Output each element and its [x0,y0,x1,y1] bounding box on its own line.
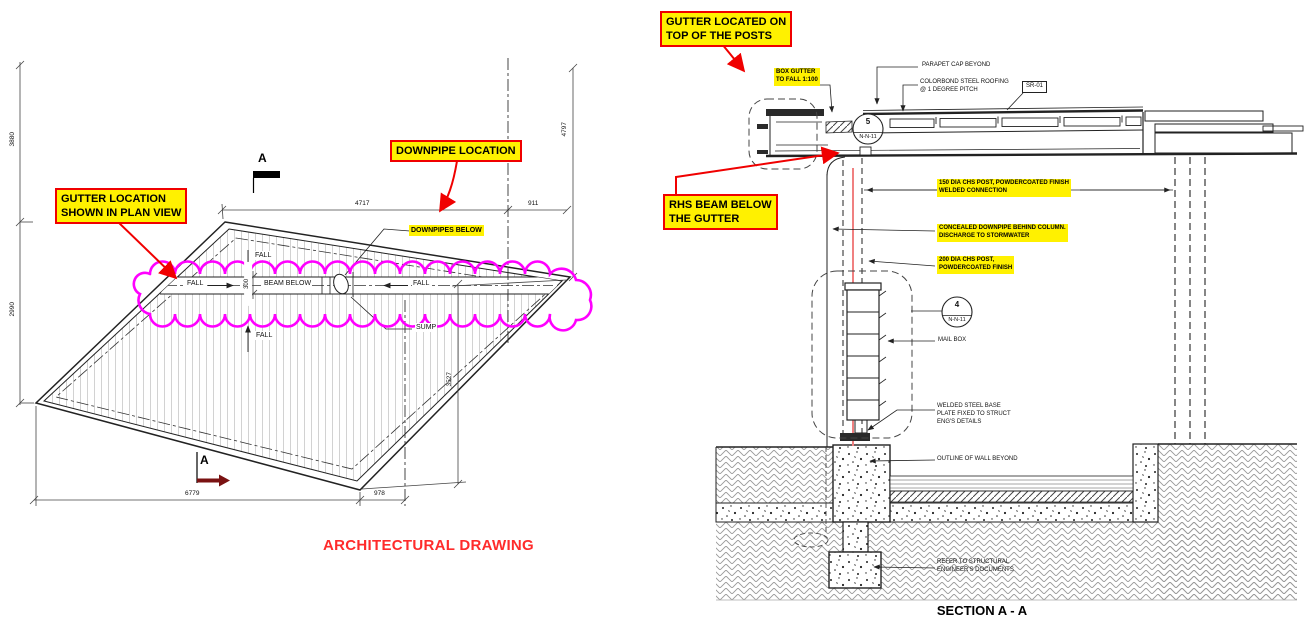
sump-label: SUMP [415,323,437,332]
tag-post-200: 200 DIA CHS POST, POWDERCOATED FINISH [937,256,1014,274]
dim-3527: 3527 [446,357,454,401]
beam-below-label: BEAM BELOW [263,279,312,288]
detail4-sheet: N-N-11 [940,317,974,324]
plan-title: ARCHITECTURAL DRAWING [323,536,534,556]
posts [827,157,1205,447]
callout-gutter-on-posts: GUTTER LOCATED ON TOP OF THE POSTS [660,11,792,47]
tag-sr01: SR-01 [1022,81,1047,93]
tag-box-gutter: BOX GUTTER TO FALL 1:100 [774,68,820,86]
detail4-number: 4 [942,300,972,310]
fall-label-lower: FALL [255,331,273,340]
section-view [676,44,1303,600]
tag-concealed-downpipe: CONCEALED DOWNPIPE BEHIND COLUMN. DISCHA… [937,224,1068,242]
section-letter-bottom: A [200,453,209,469]
section-letter-top: A [258,151,267,167]
dim-300: 300 [244,262,252,306]
note-refer-structural: REFER TO STRUCTURAL ENGINEER'S DOCUMENTS [937,559,1014,575]
detail5-number: 5 [853,117,883,127]
note-colorbond: COLORBOND STEEL ROOFING @ 1 DEGREE PITCH [920,79,1009,95]
callout-downpipe-location: DOWNPIPE LOCATION [390,140,522,162]
callout-gutter-location: GUTTER LOCATION SHOWN IN PLAN VIEW [55,188,187,224]
note-welded-base: WELDED STEEL BASE PLATE FIXED TO STRUCT … [937,403,1011,426]
callout-rhs-beam: RHS BEAM BELOW THE GUTTER [663,194,778,230]
fall-label-upper: FALL [254,251,272,260]
tag-downpipes-below: DOWNPIPES BELOW [409,225,484,236]
dim-3880: 3880 [9,117,17,161]
section-red-arrows [676,44,838,194]
tag-post-150: 150 DIA CHS POST, POWDERCOATED FINISH WE… [937,179,1071,197]
dim-2990: 2990 [9,287,17,331]
dim-4797: 4797 [561,107,569,151]
fall-label-right: FALL [412,279,430,288]
dim-4717: 4717 [355,200,369,208]
note-mail-box: MAIL BOX [938,337,966,345]
drawing-linework [0,0,1306,633]
dim-911: 911 [528,200,538,208]
detail5-sheet: N-N-11 [851,134,885,141]
architectural-sheet: GUTTER LOCATION SHOWN IN PLAN VIEW DOWNP… [0,0,1306,633]
note-parapet-cap: PARAPET CAP BEYOND [922,62,990,70]
section-title: SECTION A - A [907,603,1057,620]
section-marker-top [253,171,280,193]
dim-6779: 6779 [185,490,199,498]
note-outline-wall: OUTLINE OF WALL BEYOND [937,456,1018,464]
dim-978: 978 [374,490,385,498]
fall-label-left: FALL [186,279,204,288]
